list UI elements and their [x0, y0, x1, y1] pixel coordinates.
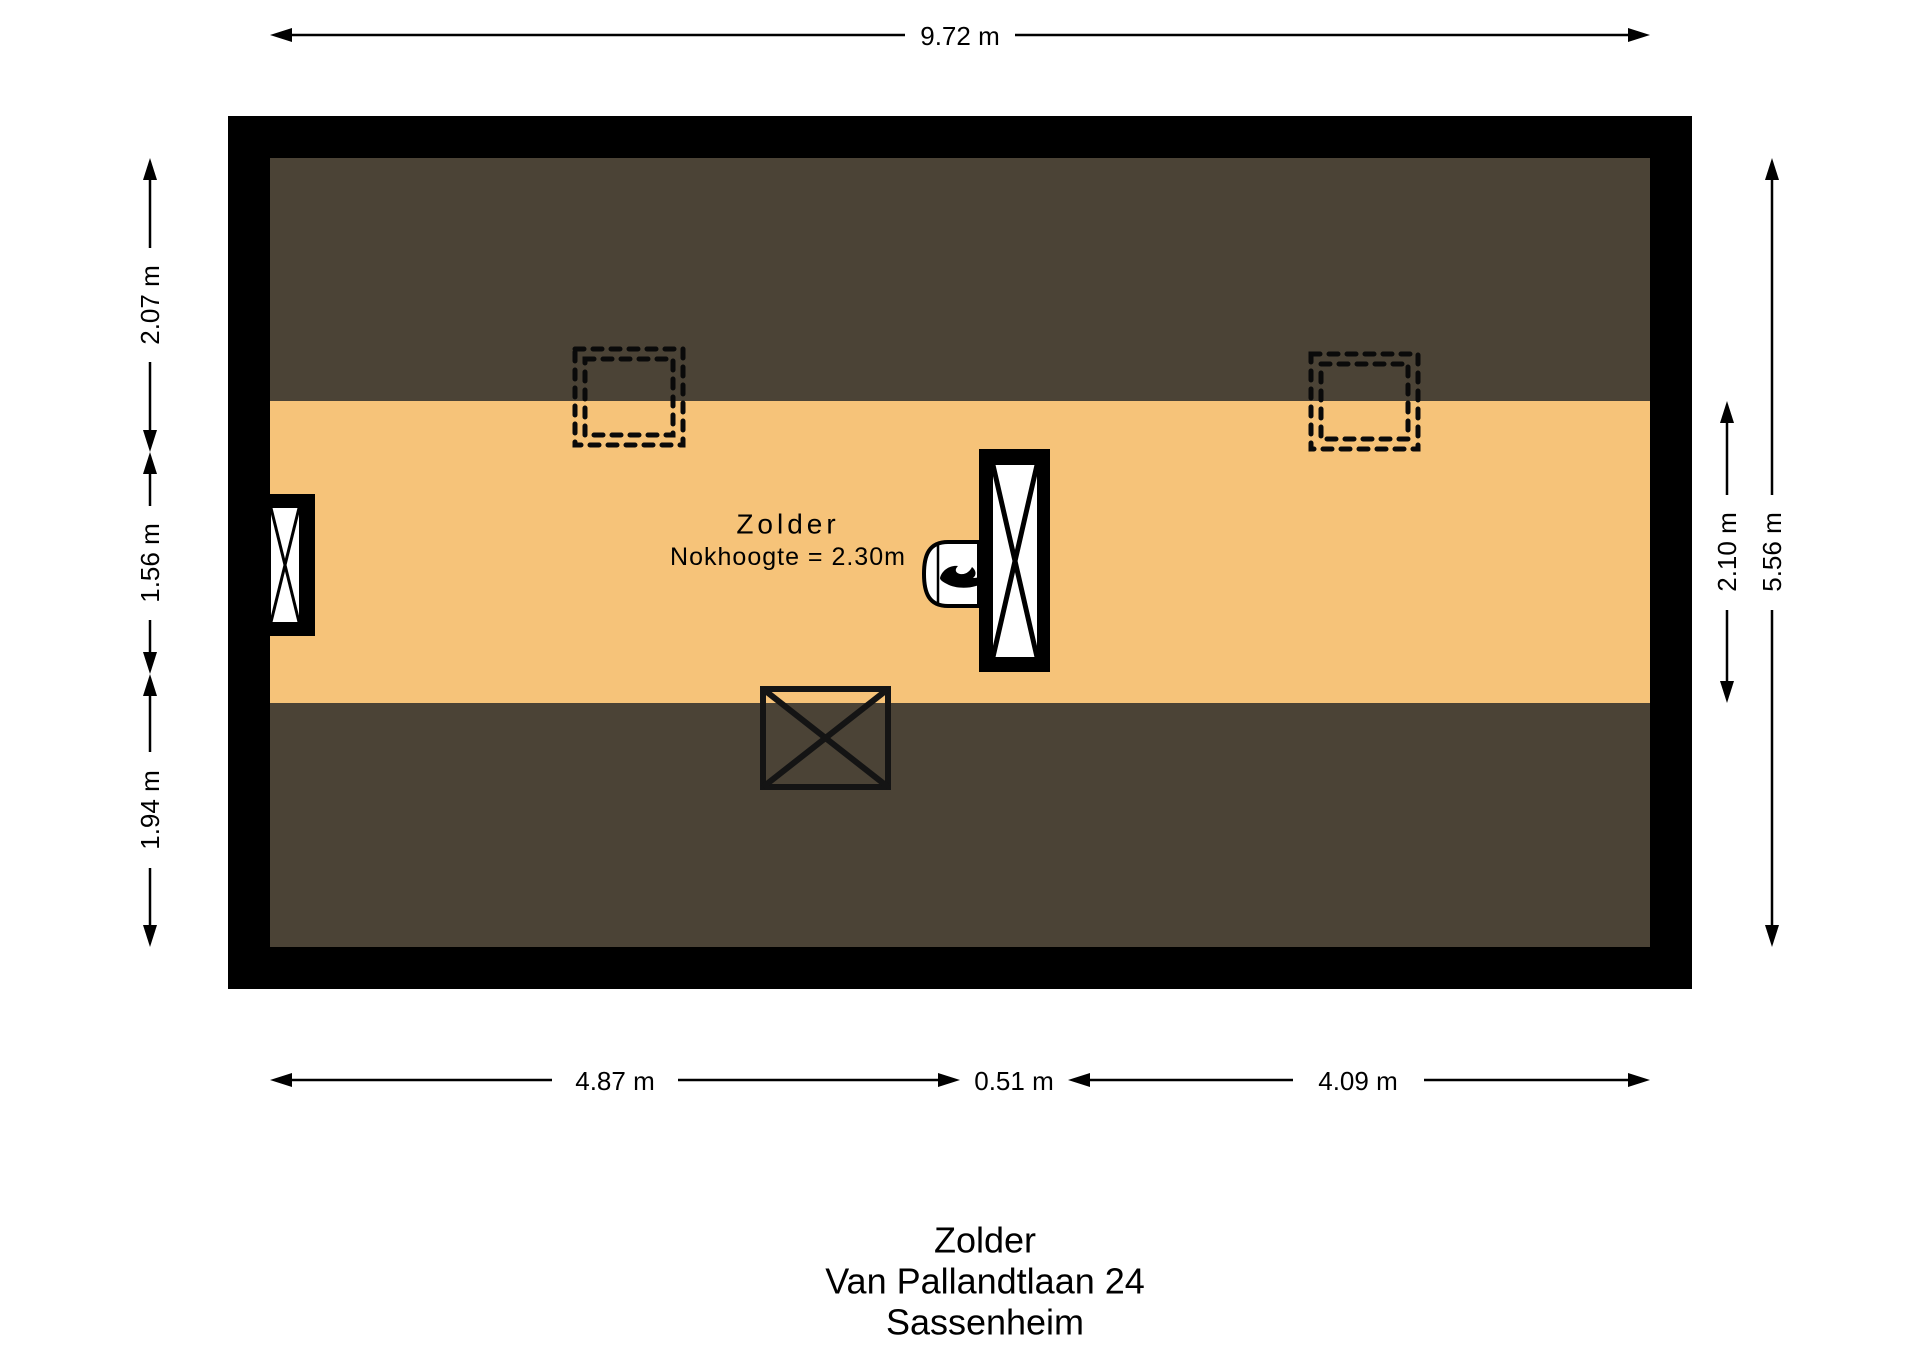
dim-bottom-label-3: 4.09 m [1318, 1066, 1398, 1096]
dimension-right-total: 5.56 m [1757, 158, 1787, 947]
arrow-right-icon [1628, 1073, 1650, 1087]
arrow-up-icon [1765, 158, 1779, 180]
arrow-down-icon [143, 430, 157, 452]
dim-left-label-3: 1.94 m [135, 770, 165, 850]
arrow-left-icon [270, 1073, 292, 1087]
dimension-top: 9.72 m [270, 21, 1650, 51]
arrow-left-icon [1068, 1073, 1090, 1087]
dim-bottom-label-2: 0.51 m [974, 1066, 1054, 1096]
arrow-up-icon [143, 158, 157, 180]
ridge-height-note: Nokhoogte = 2.30m [670, 543, 906, 571]
dimension-left: 2.07 m 1.56 m 1.94 m [135, 158, 165, 947]
window-left [267, 494, 315, 636]
dim-right-band-label: 2.10 m [1712, 512, 1742, 592]
floor-plan: Zolder Nokhoogte = 2.30m [228, 116, 1692, 989]
arrow-down-icon [143, 652, 157, 674]
arrow-down-icon [1765, 925, 1779, 947]
floorplan-canvas: Zolder Nokhoogte = 2.30m 9.72 m 4.87 m 0… [0, 0, 1920, 1358]
arrow-left-icon [270, 28, 292, 42]
dimension-bottom: 4.87 m 0.51 m 4.09 m [270, 1066, 1650, 1096]
room-name: Zolder [736, 509, 839, 540]
arrow-down-icon [1720, 681, 1734, 703]
arrow-down-icon [143, 925, 157, 947]
dim-bottom-label-1: 4.87 m [575, 1066, 655, 1096]
title-room: Zolder [934, 1220, 1036, 1261]
arrow-up-icon [143, 452, 157, 474]
title-city: Sassenheim [886, 1302, 1084, 1343]
boiler [924, 542, 986, 606]
title-block: Zolder Van Pallandtlaan 24 Sassenheim [825, 1220, 1145, 1343]
arrow-up-icon [1720, 401, 1734, 423]
arrow-right-icon [1628, 28, 1650, 42]
dim-top-label: 9.72 m [920, 21, 1000, 51]
arrow-right-icon [938, 1073, 960, 1087]
dimension-right-band: 2.10 m [1712, 401, 1742, 703]
arrow-up-icon [143, 674, 157, 696]
title-address: Van Pallandtlaan 24 [825, 1261, 1145, 1302]
dim-left-label-2: 1.56 m [135, 523, 165, 603]
chimney-shaft [979, 449, 1050, 672]
dim-left-label-1: 2.07 m [135, 265, 165, 345]
dim-right-total-label: 5.56 m [1757, 512, 1787, 592]
